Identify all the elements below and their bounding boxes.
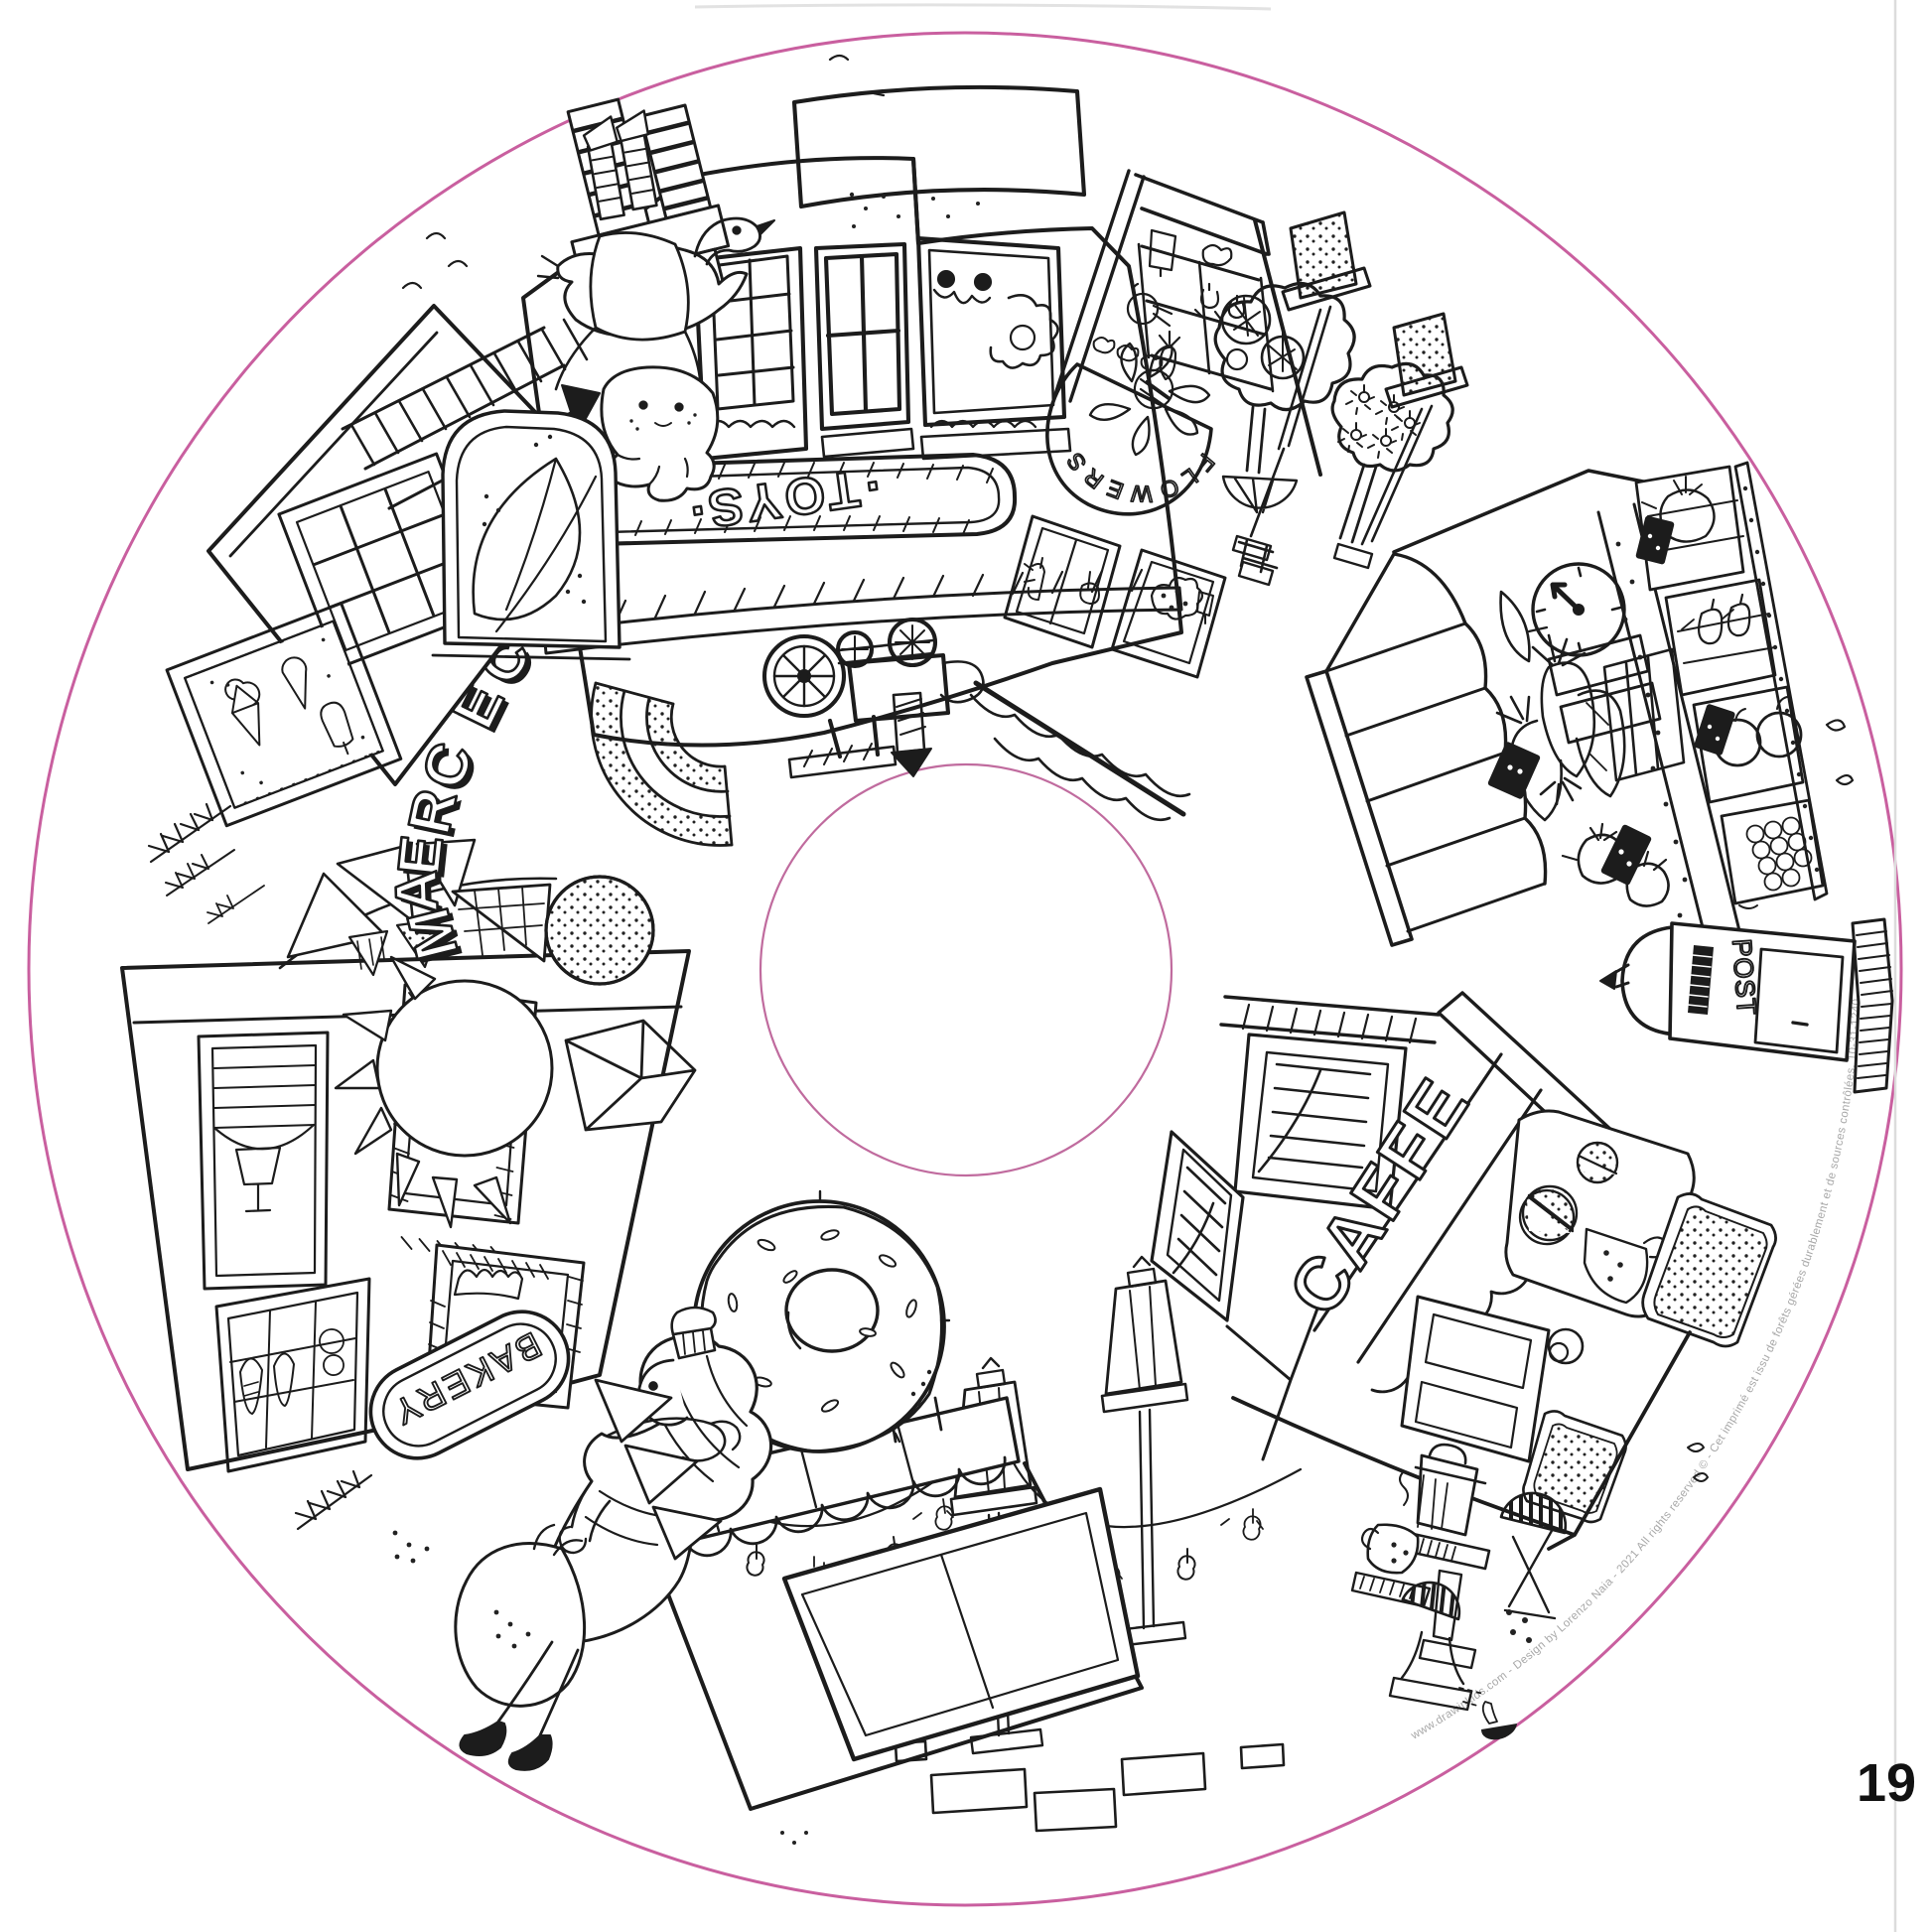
svg-text:19: 19 — [1857, 1753, 1916, 1813]
